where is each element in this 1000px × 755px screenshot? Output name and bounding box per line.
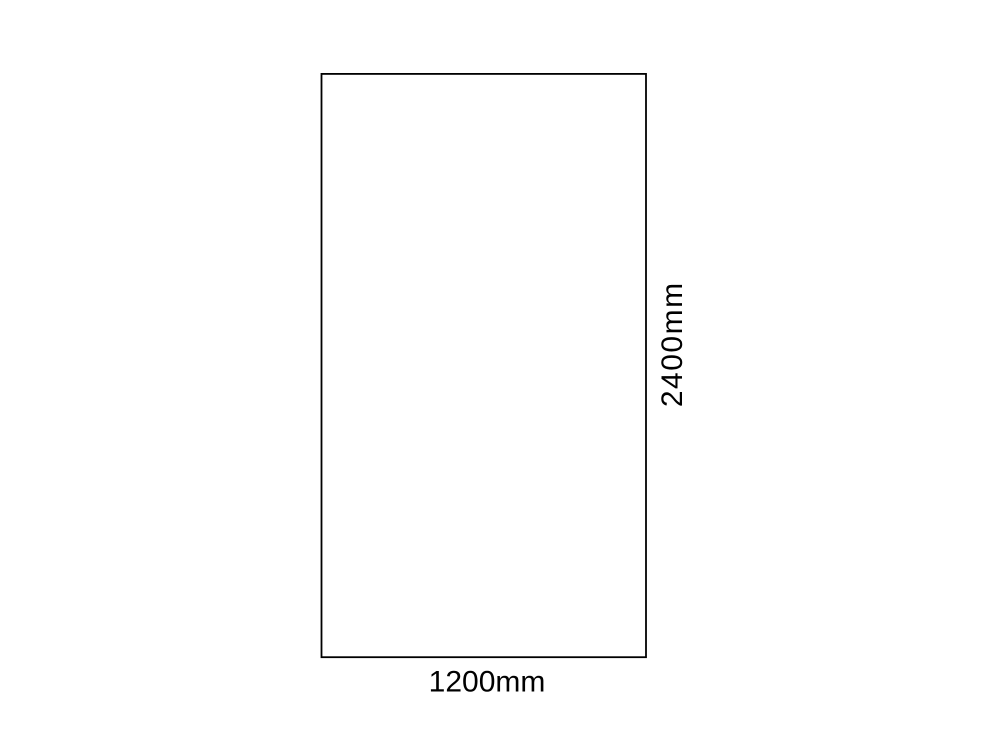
svg-text:2400mm: 2400mm xyxy=(656,281,689,407)
svg-text:1200mm: 1200mm xyxy=(429,666,546,699)
